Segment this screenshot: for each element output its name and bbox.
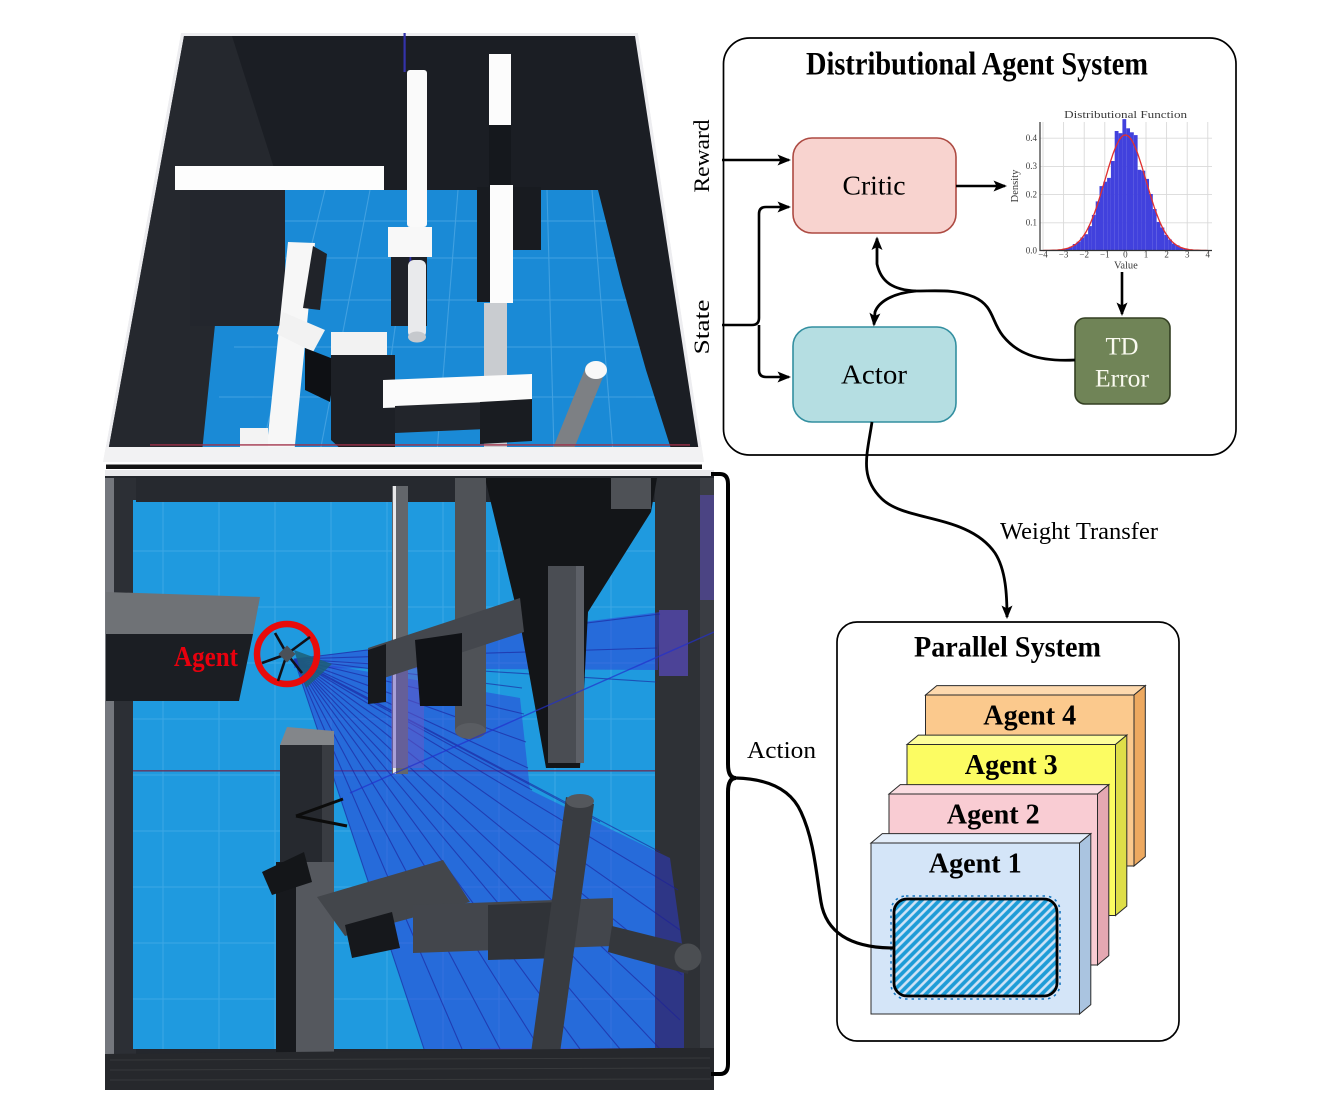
svg-text:State: State xyxy=(689,300,714,355)
svg-text:1: 1 xyxy=(1144,250,1149,260)
svg-text:−4: −4 xyxy=(1038,250,1048,260)
svg-text:0.0: 0.0 xyxy=(1026,246,1038,256)
svg-text:TD: TD xyxy=(1106,334,1139,361)
svg-text:Agent 1: Agent 1 xyxy=(929,847,1022,879)
svg-text:Reward: Reward xyxy=(689,120,714,193)
svg-text:Parallel System: Parallel System xyxy=(914,630,1101,663)
svg-text:−2: −2 xyxy=(1079,250,1089,260)
svg-text:Error: Error xyxy=(1095,366,1150,393)
svg-text:−3: −3 xyxy=(1059,250,1069,260)
svg-text:0.1: 0.1 xyxy=(1026,217,1037,227)
svg-text:0.2: 0.2 xyxy=(1026,189,1037,199)
svg-text:Weight Transfer: Weight Transfer xyxy=(1000,519,1158,545)
svg-text:0.3: 0.3 xyxy=(1026,161,1038,171)
svg-text:Density: Density xyxy=(1010,169,1021,202)
svg-text:3: 3 xyxy=(1185,250,1190,260)
svg-text:0: 0 xyxy=(1123,250,1128,260)
svg-text:2: 2 xyxy=(1164,250,1169,260)
svg-text:Agent 4: Agent 4 xyxy=(983,699,1076,731)
svg-text:Agent 3: Agent 3 xyxy=(965,749,1058,781)
svg-text:Critic: Critic xyxy=(843,171,906,201)
svg-text:Distributional Function: Distributional Function xyxy=(1064,110,1188,121)
svg-text:Actor: Actor xyxy=(841,360,907,390)
svg-text:−1: −1 xyxy=(1100,250,1110,260)
svg-text:Agent: Agent xyxy=(174,641,238,673)
svg-text:4: 4 xyxy=(1206,250,1211,260)
svg-text:Value: Value xyxy=(1114,260,1138,271)
svg-text:Action: Action xyxy=(747,738,816,764)
svg-text:0.4: 0.4 xyxy=(1026,133,1038,143)
svg-text:Agent 2: Agent 2 xyxy=(947,798,1040,830)
svg-text:Distributional Agent System: Distributional Agent System xyxy=(806,47,1148,83)
